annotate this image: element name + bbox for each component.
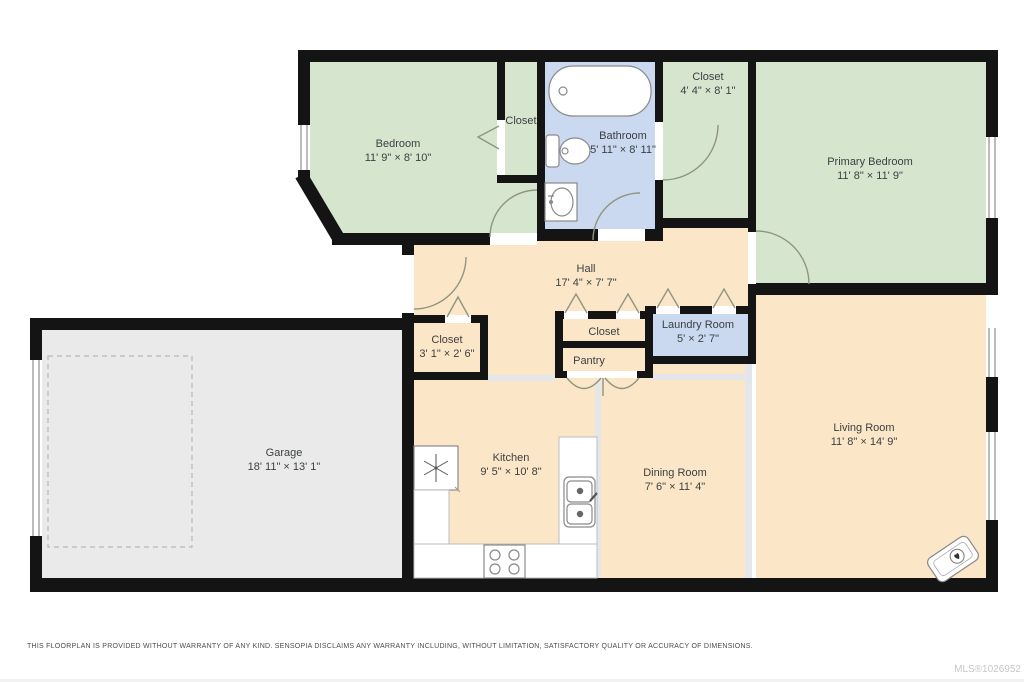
primary-bedroom-floor <box>756 62 986 283</box>
floorplan-page: Bedroom 11' 9" × 8' 10" Closet Bathroom … <box>0 0 1024 682</box>
closet-primary-floor <box>663 62 748 218</box>
floorplan-drawing <box>0 0 1024 682</box>
living-room-window-lower <box>986 432 998 520</box>
bath-sink-icon <box>545 183 577 221</box>
mls-id: MLS®1026952 <box>954 664 1021 675</box>
kitchen-counter-left <box>414 490 449 544</box>
laundry-floor <box>645 306 756 364</box>
stove-icon <box>484 545 525 578</box>
toilet-icon <box>546 135 590 167</box>
disclaimer-text: THIS FLOORPLAN IS PROVIDED WITHOUT WARRA… <box>27 643 753 650</box>
kitchen-sink-icon <box>564 477 597 527</box>
living-floor <box>756 295 986 578</box>
bathtub-icon <box>549 66 651 116</box>
fridge-snowflake-icon <box>414 446 460 492</box>
garage-floor <box>42 330 402 578</box>
living-room-window-upper <box>986 328 998 377</box>
primary-bedroom-window <box>986 137 998 218</box>
garage-door-opening <box>33 360 39 536</box>
bedroom-window <box>298 125 310 170</box>
